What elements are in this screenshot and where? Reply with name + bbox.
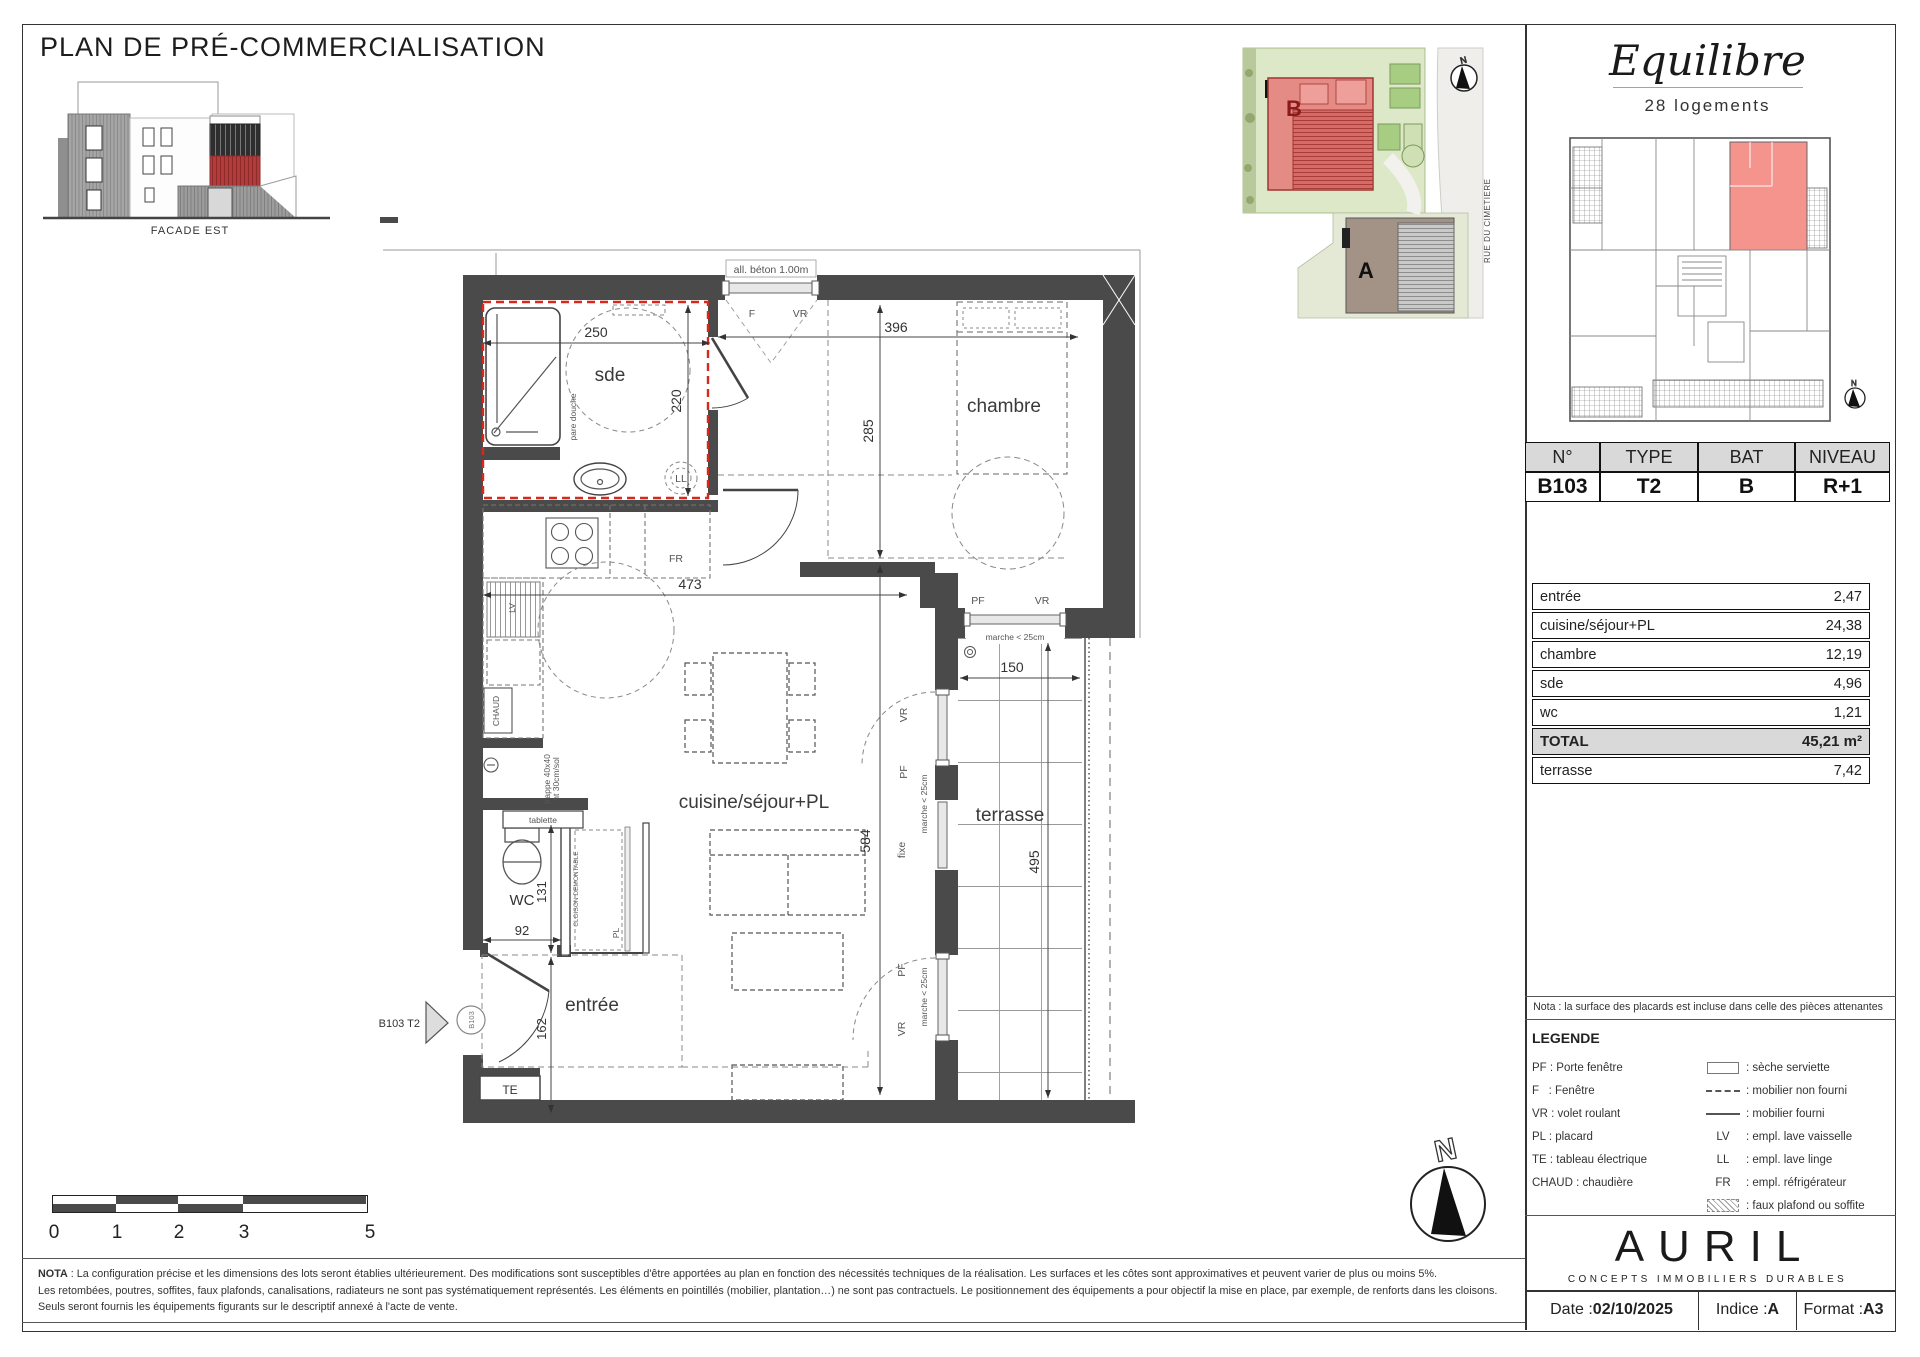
areas-table: entrée2,47 cuisine/séjour+PL24,38 chambr… bbox=[1532, 583, 1870, 786]
nota-text: NOTA : La configuration précise et les d… bbox=[38, 1266, 1518, 1316]
unit-type: T2 bbox=[1600, 472, 1698, 502]
unit-entry-marker bbox=[426, 1002, 485, 1043]
dim-131: 131 bbox=[534, 881, 549, 903]
unit-tag-label: B103 T2 bbox=[379, 1018, 420, 1030]
table-row: sde4,96 bbox=[1532, 670, 1870, 697]
table-row-total: TOTAL45,21 m² bbox=[1532, 728, 1870, 755]
site-building-a-label: A bbox=[1358, 258, 1374, 283]
te-label: TE bbox=[502, 1083, 517, 1097]
legend: LEGENDE PF : Porte fenêtre F : Fenêtre V… bbox=[1532, 1030, 1890, 1217]
dim-220: 220 bbox=[668, 389, 684, 413]
legend-item: CHAUD : chaudière bbox=[1532, 1171, 1700, 1194]
table-row: cuisine/séjour+PL24,38 bbox=[1532, 612, 1870, 639]
seche-serviette-icon bbox=[1707, 1062, 1739, 1074]
north-compass-icon: N bbox=[1398, 1122, 1503, 1257]
legend-item: LL: empl. lave linge bbox=[1700, 1148, 1890, 1171]
project-logo: Equilibre 28 logements bbox=[1525, 36, 1890, 116]
table-row-terrasse: terrasse7,42 bbox=[1532, 757, 1870, 784]
window-vr-label: VR bbox=[793, 308, 808, 320]
dashed-line-icon bbox=[1706, 1090, 1740, 1092]
ll-label: LL bbox=[675, 473, 687, 485]
unit-col-niveau: NIVEAU bbox=[1795, 442, 1890, 472]
overview-plan: N bbox=[1560, 126, 1890, 436]
dim-250: 250 bbox=[584, 324, 608, 340]
dim-495: 495 bbox=[1026, 850, 1042, 874]
street-label: RUE DU CIMETIERE bbox=[1483, 179, 1492, 263]
dim-584: 584 bbox=[857, 829, 873, 853]
brand-tagline: CONCEPTS IMMOBILIERS DURABLES bbox=[1525, 1274, 1890, 1285]
room-label-entree: entrée bbox=[565, 995, 619, 1016]
pf-top-label: PF bbox=[971, 595, 984, 607]
legend-item: F : Fenêtre bbox=[1532, 1079, 1700, 1102]
legend-item: LV: empl. lave vaisselle bbox=[1700, 1125, 1890, 1148]
table-row: entrée2,47 bbox=[1532, 583, 1870, 610]
trappe-label-2: ht 30cm/sol bbox=[551, 757, 561, 801]
legend-item: TE : tableau électrique bbox=[1532, 1148, 1700, 1171]
legend-item: FR: empl. réfrigérateur bbox=[1700, 1171, 1890, 1194]
pare-douche-label: pare douche bbox=[568, 393, 578, 441]
vr-lower-label: VR bbox=[896, 1021, 908, 1036]
project-units: 28 logements bbox=[1525, 96, 1890, 116]
overview-north-compass-icon: N bbox=[1845, 379, 1865, 408]
footer-format: Format : A3 bbox=[1797, 1290, 1890, 1330]
unit-id-table: N° TYPE BAT NIVEAU B103 T2 B R+1 bbox=[1525, 442, 1890, 502]
svg-text:N: N bbox=[1851, 379, 1857, 388]
site-building-b-label: B bbox=[1286, 96, 1302, 121]
svg-text:N: N bbox=[1432, 1132, 1460, 1169]
floor-plan: all. béton 1.00m F VR 250 sde 220 pare d… bbox=[360, 205, 1150, 1165]
footer-indice: Indice : A bbox=[1699, 1290, 1797, 1330]
fr-label: FR bbox=[669, 553, 683, 565]
dim-473: 473 bbox=[678, 576, 702, 592]
pl-label: PL bbox=[611, 928, 621, 939]
fixe-label: fixe bbox=[896, 842, 908, 859]
marche-side-label-2: marche < 25cm bbox=[919, 968, 929, 1027]
legend-item: : mobilier fourni bbox=[1700, 1102, 1890, 1125]
cloison-label: CLOISON DEMONTABLE bbox=[573, 851, 580, 927]
dim-396: 396 bbox=[884, 319, 908, 335]
legend-item: VR : volet roulant bbox=[1532, 1102, 1700, 1125]
scale-1: 1 bbox=[105, 1222, 129, 1244]
unit-bat: B bbox=[1698, 472, 1795, 502]
project-name: Equilibre bbox=[1525, 36, 1890, 85]
dim-162: 162 bbox=[534, 1018, 549, 1040]
plan-sheet: { "page": {"title": "PLAN DE PRÉ-COMMERC… bbox=[0, 0, 1920, 1357]
facade-drawing bbox=[43, 82, 330, 218]
brand-name: AURIL bbox=[1525, 1222, 1890, 1272]
legend-right-column: : sèche serviette : mobilier non fourni … bbox=[1700, 1056, 1890, 1217]
nota-divider-top bbox=[22, 1258, 1525, 1259]
chaud-label: CHAUD bbox=[491, 696, 501, 726]
unit-col-bat: BAT bbox=[1698, 442, 1795, 472]
unit-col-type: TYPE bbox=[1600, 442, 1698, 472]
unit-no: B103 bbox=[1525, 472, 1600, 502]
dim-150: 150 bbox=[1000, 659, 1024, 675]
footer-bar: Date : 02/10/2025 Indice : A Format : A3 bbox=[1525, 1290, 1890, 1330]
dim-285: 285 bbox=[860, 419, 876, 443]
room-label-sejour: cuisine/séjour+PL bbox=[679, 792, 830, 813]
legend-item: : faux plafond ou soffite bbox=[1700, 1194, 1890, 1217]
solid-line-icon bbox=[1706, 1113, 1740, 1115]
legend-title: LEGENDE bbox=[1532, 1030, 1890, 1046]
window-f-label: F bbox=[749, 308, 755, 320]
kitchen bbox=[483, 505, 710, 772]
scale-3: 3 bbox=[232, 1222, 256, 1244]
facade-label: FACADE EST bbox=[151, 225, 229, 237]
scale-5: 5 bbox=[358, 1222, 382, 1244]
beton-label: all. béton 1.00m bbox=[734, 264, 809, 276]
pf-upper-label: PF bbox=[898, 765, 910, 778]
pf-lower-label: PF bbox=[896, 963, 908, 976]
nota-divider-bottom bbox=[22, 1322, 1525, 1323]
chambre-items bbox=[718, 300, 1067, 569]
room-label-chambre: chambre bbox=[967, 396, 1041, 417]
vr-top-label: VR bbox=[1035, 595, 1050, 607]
lv-label: LV bbox=[507, 603, 517, 613]
dim-92: 92 bbox=[515, 923, 529, 938]
room-label-sde: sde bbox=[595, 365, 626, 386]
facade-elevation: FACADE EST bbox=[40, 58, 410, 248]
vr-upper-label: VR bbox=[898, 707, 910, 722]
tablette-label: tablette bbox=[529, 815, 557, 825]
marche-top-label: marche < 25cm bbox=[986, 632, 1045, 642]
scale-0: 0 bbox=[42, 1222, 66, 1244]
legend-item: : mobilier non fourni bbox=[1700, 1079, 1890, 1102]
sejour-furniture bbox=[538, 562, 865, 1100]
site-plan: B A RUE DU CIMETIERE N bbox=[1238, 28, 1533, 336]
legend-item: : sèche serviette bbox=[1700, 1056, 1890, 1079]
unit-col-no: N° bbox=[1525, 442, 1600, 472]
legend-item: PL : placard bbox=[1532, 1125, 1700, 1148]
legend-item: PF : Porte fenêtre bbox=[1532, 1056, 1700, 1079]
room-label-terrasse: terrasse bbox=[976, 805, 1045, 826]
faux-plafond-icon bbox=[1707, 1199, 1739, 1212]
unit-niveau: R+1 bbox=[1795, 472, 1890, 502]
room-label-wc: WC bbox=[510, 892, 535, 909]
legend-left-column: PF : Porte fenêtre F : Fenêtre VR : vole… bbox=[1532, 1056, 1700, 1217]
scale-bar bbox=[52, 1195, 368, 1213]
footer-date: Date : 02/10/2025 bbox=[1525, 1290, 1699, 1330]
panel-nota: Nota : la surface des placards est inclu… bbox=[1528, 1001, 1888, 1013]
scale-2: 2 bbox=[167, 1222, 191, 1244]
table-row: chambre12,19 bbox=[1532, 641, 1870, 668]
brand-block: AURIL CONCEPTS IMMOBILIERS DURABLES bbox=[1525, 1222, 1890, 1285]
marche-side-label-1: marche < 25cm bbox=[919, 775, 929, 834]
table-row: wc1,21 bbox=[1532, 699, 1870, 726]
unit-circle-label: B103 bbox=[467, 1011, 476, 1029]
